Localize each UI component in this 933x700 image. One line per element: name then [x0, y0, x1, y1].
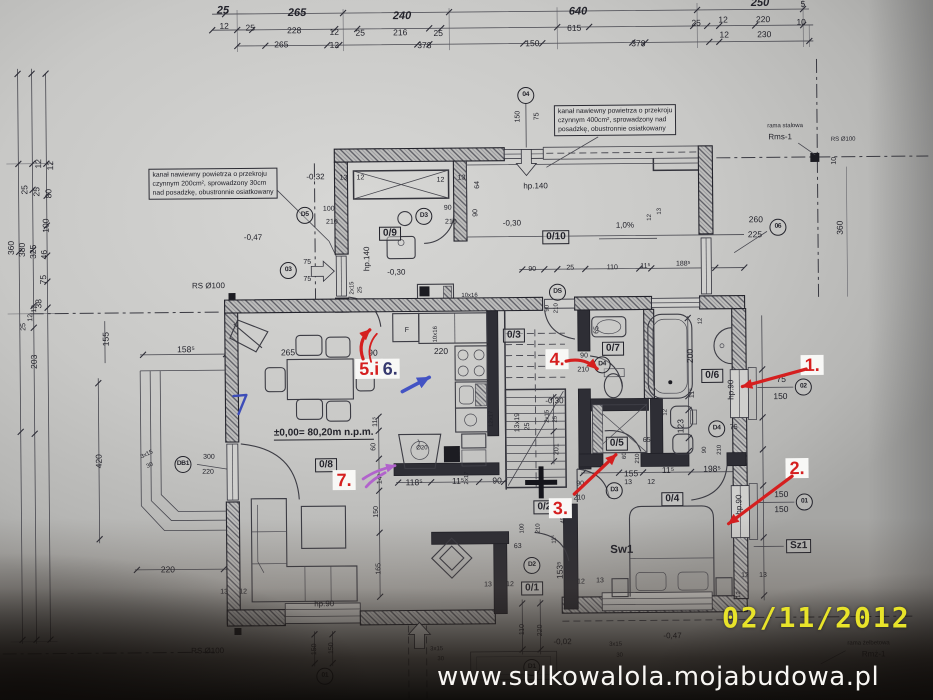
- plan-rotation-wrapper: 2526524064025051225228122521625615251222…: [0, 0, 933, 700]
- floorplan-drawing: [0, 0, 933, 700]
- blueprint-photo: 2526524064025051225228122521625615251222…: [0, 0, 933, 700]
